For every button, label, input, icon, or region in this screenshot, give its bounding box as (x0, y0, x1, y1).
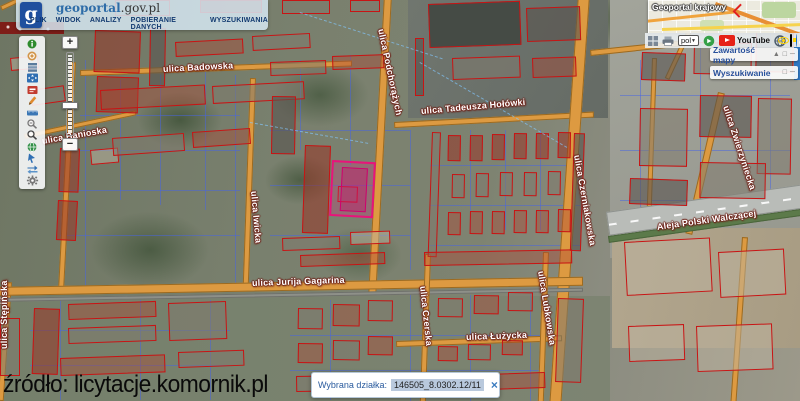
draw-pencil-icon[interactable] (23, 96, 41, 106)
left-toolbar (19, 36, 45, 189)
building-outline (718, 249, 786, 298)
contrast-eye-icon[interactable] (790, 34, 792, 47)
building-outline (68, 301, 157, 320)
language-value: pol (681, 36, 691, 45)
building-outline (282, 236, 340, 251)
building-outline (524, 172, 537, 196)
building-outline (350, 231, 390, 245)
building-outline (270, 60, 326, 76)
building-outline (168, 301, 227, 341)
parcel-line (60, 235, 240, 236)
overview-minimap[interactable]: Geoportal krajowy (648, 0, 800, 33)
menu-item-3[interactable]: POBIERANIE DANYCH (131, 17, 201, 31)
select-feature-icon[interactable] (23, 153, 41, 163)
panel-minimize-icon[interactable]: ─ (790, 51, 795, 58)
minimap-label: Geoportal krajowy (652, 2, 726, 12)
building-outline (468, 344, 491, 360)
search-panel-header[interactable]: Wyszukiwanie □ ─ (710, 66, 798, 79)
building-outline (514, 210, 527, 233)
minimap-road (648, 10, 739, 23)
building-outline (474, 295, 499, 314)
building-outline (492, 134, 505, 160)
building-outline (476, 173, 489, 197)
building-outline (448, 212, 461, 235)
map-contents-panel-header[interactable]: Zawartość mapy ▲ □ ─ (710, 48, 798, 61)
panel-up-icon[interactable]: ▲ (773, 51, 780, 58)
building-outline (438, 346, 458, 361)
panel-window-icon[interactable]: □ (783, 51, 787, 58)
building-outline (502, 340, 523, 355)
building-outline (639, 108, 688, 167)
site-title: geoportal.gov.pl (56, 1, 236, 15)
parcel-line (430, 245, 580, 246)
globe-icon[interactable] (23, 142, 41, 152)
parcel-line (290, 370, 540, 371)
building-outline (68, 325, 157, 344)
building-outline (58, 148, 80, 193)
site-title-primary: geoportal (56, 1, 121, 15)
building-outline (532, 56, 577, 78)
parcel-line (85, 60, 86, 290)
parcel-line (350, 55, 351, 165)
building-outline (470, 135, 483, 161)
building-outline (252, 33, 311, 51)
building-outline (448, 135, 461, 161)
zoom-out-button[interactable]: − (62, 138, 78, 151)
header-bar: g geoportal.gov.pl PLIKWIDOKANALIZYPOBIE… (16, 0, 268, 30)
building-outline (452, 56, 521, 80)
building-outline (492, 211, 505, 234)
building-outline (555, 298, 584, 383)
building-outline (536, 210, 549, 233)
building-outline (178, 350, 245, 368)
building-outline (629, 178, 688, 206)
street-label: ulica Łużycka (466, 330, 527, 342)
minimap-park (762, 2, 796, 18)
building-outline (298, 343, 323, 363)
building-outline (333, 304, 360, 326)
search-magnifier-icon[interactable] (23, 130, 41, 140)
accessibility-icon[interactable] (796, 34, 797, 47)
building-outline (332, 54, 384, 70)
parcel-line (430, 205, 580, 206)
building-outline (428, 1, 521, 48)
swap-view-icon[interactable] (23, 164, 41, 174)
building-outline (699, 162, 766, 199)
building-outline (282, 0, 330, 14)
building-outline (415, 38, 424, 96)
building-outline (514, 133, 527, 159)
building-outline (558, 209, 571, 232)
selected-parcel-infobox: Wybrana działka: 146505_8.0302.12/11 × (311, 372, 500, 398)
zoom-box-icon[interactable] (23, 119, 41, 129)
building-outline (149, 28, 166, 86)
eye-icon (778, 37, 789, 44)
building-outline (696, 323, 774, 372)
zoom-slider-handle[interactable] (62, 102, 78, 109)
building-outline (424, 249, 572, 266)
pan-view-icon[interactable] (23, 73, 41, 83)
selected-parcel-building (340, 167, 368, 212)
parcel-line (60, 190, 240, 191)
building-outline (548, 171, 561, 195)
parcel-line (410, 130, 411, 270)
info-icon[interactable] (23, 39, 41, 49)
building-outline (452, 174, 465, 198)
print-export-icon[interactable] (23, 85, 41, 95)
layers-icon[interactable] (23, 62, 41, 72)
settings-gear-icon[interactable] (23, 176, 41, 186)
building-outline (333, 340, 360, 360)
building-outline (32, 308, 60, 375)
building-outline (368, 336, 393, 355)
legend-icon[interactable] (23, 50, 41, 60)
building-outline (302, 145, 331, 234)
building-outline (624, 237, 713, 295)
parcel-line (235, 75, 236, 290)
menu-bar: PLIKWIDOKANALIZYPOBIERANIE DANYCHWYSZUKI… (30, 17, 268, 31)
building-outline (628, 324, 685, 362)
building-outline (94, 30, 141, 74)
building-outline (298, 308, 323, 329)
building-outline (470, 211, 483, 234)
site-title-secondary: .gov.pl (121, 1, 160, 15)
measure-icon[interactable] (23, 107, 41, 117)
menu-item-2[interactable]: ANALIZY (90, 17, 122, 31)
map-canvas[interactable]: ulica Badowskaulica Banioskaulica Podcho… (0, 0, 800, 401)
printer-icon[interactable] (662, 36, 674, 46)
search-title: Wyszukiwanie (713, 68, 780, 78)
map-contents-title: Zawartość mapy (713, 45, 770, 65)
source-watermark: źródło: licytacje.komornik.pl (3, 371, 268, 399)
parcel-id-value: 146505_8.0302.12/11 (391, 379, 484, 391)
parcel-label: Wybrana działka: (318, 380, 387, 390)
building-outline (56, 200, 78, 241)
menu-item-4[interactable]: WYSZUKIWANIA (210, 17, 268, 31)
building-outline (350, 0, 380, 12)
panel-minimize-icon[interactable]: ─ (790, 69, 795, 76)
building-outline (271, 96, 296, 154)
building-outline (500, 172, 513, 196)
chevron-down-icon: ▼ (691, 38, 696, 44)
parcel-line (430, 165, 580, 166)
zoom-slider-track[interactable] (66, 52, 74, 136)
building-outline (438, 298, 463, 317)
building-outline (526, 6, 581, 42)
building-outline (508, 292, 533, 311)
building-outline (368, 300, 393, 321)
geoportal-app: ulica Badowskaulica Banioskaulica Podcho… (0, 0, 800, 401)
close-icon[interactable]: × (491, 380, 498, 390)
language-select[interactable]: pol▼ (678, 35, 699, 46)
menu-item-1[interactable]: WIDOK (56, 17, 81, 31)
grid-icon[interactable] (648, 36, 658, 46)
menu-item-0[interactable]: PLIK (30, 17, 47, 31)
zoom-in-button[interactable]: + (62, 36, 78, 49)
panel-window-icon[interactable]: □ (783, 69, 787, 76)
building-outline (641, 52, 686, 82)
street-label: ulica Stępińska (0, 280, 9, 349)
